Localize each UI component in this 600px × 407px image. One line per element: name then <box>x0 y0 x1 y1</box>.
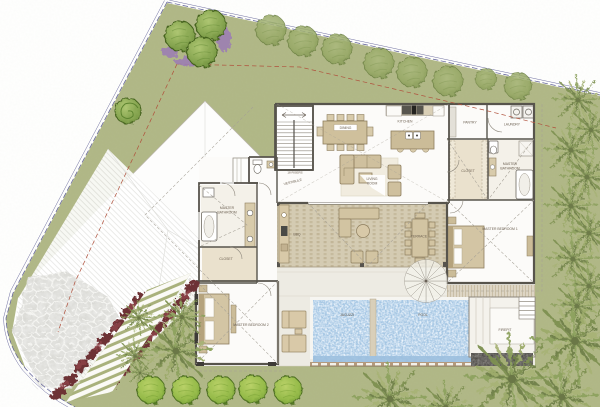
svg-text:BBQ: BBQ <box>293 233 301 237</box>
svg-text:PANTRY: PANTRY <box>463 121 477 125</box>
svg-text:KITCHEN: KITCHEN <box>398 120 413 124</box>
svg-text:18 RISERS: 18 RISERS <box>287 171 302 175</box>
svg-text:MASTER BEDROOM 2: MASTER BEDROOM 2 <box>233 323 269 327</box>
svg-text:DINING: DINING <box>340 126 352 130</box>
svg-text:JACUZZI: JACUZZI <box>340 313 354 317</box>
svg-text:ROOM: ROOM <box>367 182 378 186</box>
svg-text:MASTER: MASTER <box>220 206 235 210</box>
svg-text:MASTER BEDROOM 1: MASTER BEDROOM 1 <box>482 227 518 231</box>
svg-text:BATHROOM: BATHROOM <box>500 167 520 171</box>
svg-text:TERRACE: TERRACE <box>411 235 428 239</box>
svg-text:LAUNDRY: LAUNDRY <box>504 123 521 127</box>
svg-text:FIREPIT: FIREPIT <box>499 328 512 332</box>
svg-text:MASTER: MASTER <box>503 162 518 166</box>
svg-text:CLOSET: CLOSET <box>219 257 233 261</box>
svg-text:CLOSET: CLOSET <box>461 169 475 173</box>
svg-text:BATHROOM: BATHROOM <box>217 211 237 215</box>
svg-text:LIVING: LIVING <box>366 177 377 181</box>
svg-text:POOL: POOL <box>418 313 428 317</box>
